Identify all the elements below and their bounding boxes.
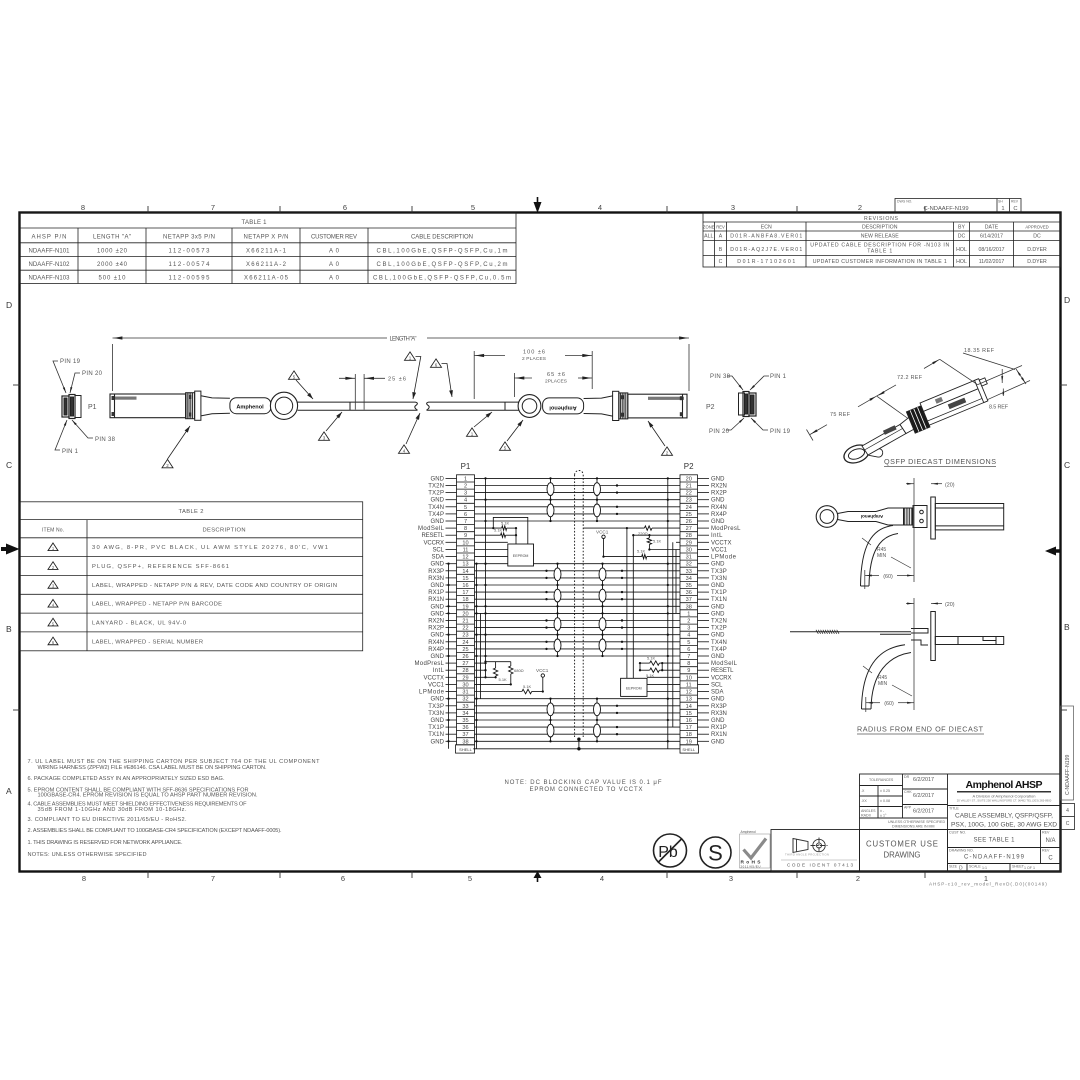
svg-text:D: D: [1064, 295, 1070, 305]
svg-text:GND: GND: [431, 583, 445, 589]
svg-text:DRAWING: DRAWING: [884, 851, 921, 860]
svg-text:2: 2: [464, 484, 467, 490]
svg-text:31: 31: [462, 690, 468, 696]
svg-text:9: 9: [464, 533, 467, 539]
svg-text:C: C: [1064, 460, 1070, 470]
svg-text:RESETL: RESETL: [711, 668, 734, 674]
svg-text:2011/65/EU: 2011/65/EU: [741, 865, 761, 869]
svg-text:C-NDAAFF-N199: C-NDAAFF-N199: [964, 855, 1025, 861]
svg-text:8: 8: [464, 526, 467, 532]
svg-text:RX3N: RX3N: [711, 711, 727, 717]
svg-text:RX4N: RX4N: [428, 640, 444, 646]
svg-text:680Ω: 680Ω: [514, 668, 524, 673]
svg-text:GND: GND: [431, 562, 445, 568]
svg-text:GND: GND: [711, 498, 725, 504]
svg-text:EPROM CONNECTED TO VCCTX: EPROM CONNECTED TO VCCTX: [530, 787, 643, 793]
svg-text:A: A: [719, 234, 723, 240]
svg-text:ModSelL: ModSelL: [711, 661, 738, 667]
svg-text:VCCRX: VCCRX: [711, 675, 732, 681]
svg-text:X66211A-1: X66211A-1: [246, 249, 287, 255]
svg-text:(60): (60): [883, 574, 893, 580]
svg-text:BY: BY: [958, 225, 965, 231]
svg-text:EEPROM: EEPROM: [626, 686, 642, 690]
svg-text:D.DYER: D.DYER: [1027, 247, 1047, 253]
svg-text:AHSP P/N: AHSP P/N: [32, 235, 67, 241]
svg-text:GND: GND: [711, 697, 725, 703]
svg-text:5: 5: [468, 874, 472, 883]
svg-text:TX1P: TX1P: [428, 725, 444, 731]
svg-text:26: 26: [462, 654, 468, 660]
svg-text:GND: GND: [431, 498, 445, 504]
svg-text:VCC1: VCC1: [428, 682, 445, 688]
svg-text:7: 7: [211, 874, 215, 883]
svg-text:TX2P: TX2P: [711, 626, 727, 632]
svg-text:ECN: ECN: [761, 225, 772, 231]
svg-text:TX1P: TX1P: [711, 590, 727, 596]
svg-text:6: 6: [687, 647, 690, 653]
svg-text:12: 12: [686, 690, 692, 696]
svg-text:APPROVED: APPROVED: [1025, 225, 1048, 230]
svg-text:CABLE ASSEMBLY, QSFP/QSFP,: CABLE ASSEMBLY, QSFP/QSFP,: [955, 813, 1053, 820]
svg-text:3: 3: [464, 491, 467, 497]
svg-text:C: C: [1048, 856, 1053, 862]
svg-text:4: 4: [1066, 808, 1069, 814]
svg-text:16: 16: [462, 583, 468, 589]
svg-text:SCL: SCL: [433, 548, 445, 554]
svg-text:LABEL, WRAPPED - NETAPP P/N &: LABEL, WRAPPED - NETAPP P/N & REV, DATE …: [92, 583, 337, 589]
svg-text:8.5 REF: 8.5 REF: [989, 405, 1009, 411]
svg-text:TX2P: TX2P: [428, 491, 444, 497]
svg-text:QSFP DIECAST DIMENSIONS: QSFP DIECAST DIMENSIONS: [884, 457, 996, 466]
svg-text:CABLE DESCRIPTION: CABLE DESCRIPTION: [411, 235, 473, 241]
svg-text:11: 11: [686, 682, 692, 688]
svg-text:DR: DR: [904, 775, 910, 779]
svg-text:DC: DC: [1033, 234, 1041, 240]
svg-text:.XX: .XX: [861, 799, 867, 803]
svg-text:NOTE: DC BLOCKING CAP VALUE IS: NOTE: DC BLOCKING CAP VALUE IS 0.1 μF: [505, 780, 662, 786]
svg-text:2. ASSEMBLIES SHALL BE COMPLIA: 2. ASSEMBLIES SHALL BE COMPLIANT TO 100G…: [28, 828, 282, 834]
svg-text:7: 7: [464, 519, 467, 525]
svg-text:LPMode: LPMode: [711, 555, 737, 561]
svg-text:LABEL, WRAPPED - NETAPP P/N BA: LABEL, WRAPPED - NETAPP P/N BARCODE: [92, 602, 222, 608]
svg-text:4: 4: [598, 203, 602, 212]
svg-text:GND: GND: [711, 611, 725, 617]
svg-text:PIN 19: PIN 19: [60, 359, 81, 365]
svg-text:RX1P: RX1P: [428, 590, 444, 596]
svg-text:TABLE 2: TABLE 2: [179, 509, 204, 515]
svg-text:TX1N: TX1N: [711, 597, 727, 603]
svg-text:RX4P: RX4P: [711, 512, 727, 518]
svg-text:32: 32: [686, 562, 692, 568]
svg-text:5.1K: 5.1K: [523, 684, 532, 689]
svg-text:5.1K: 5.1K: [647, 656, 656, 661]
svg-text:28: 28: [462, 668, 468, 674]
svg-text:D.DYER: D.DYER: [1027, 259, 1047, 265]
svg-text:TX2N: TX2N: [428, 484, 444, 490]
svg-text:ITEM No.: ITEM No.: [42, 528, 64, 534]
svg-text:1 OF 1: 1 OF 1: [1024, 866, 1035, 870]
svg-text:TX4N: TX4N: [711, 640, 727, 646]
svg-text:1. THIS DRAWING IS RESERVED FO: 1. THIS DRAWING IS RESERVED FOR NETWORK …: [28, 840, 183, 846]
svg-text:(60): (60): [884, 701, 894, 707]
svg-text:7: 7: [687, 654, 690, 660]
svg-text:DRAWING NO.: DRAWING NO.: [949, 849, 974, 853]
svg-text:UPDATED CUSTOMER INFORMATION I: UPDATED CUSTOMER INFORMATION IN TABLE 1: [813, 259, 947, 265]
svg-text:CUSTOMER REV: CUSTOMER REV: [311, 235, 357, 241]
svg-text:5.1K: 5.1K: [637, 549, 646, 554]
svg-text:CUST NO.: CUST NO.: [949, 831, 966, 835]
svg-text:TABLE 1: TABLE 1: [867, 249, 892, 255]
svg-text:SH: SH: [998, 200, 1003, 204]
svg-text:15: 15: [462, 576, 468, 582]
svg-text:PIN 20: PIN 20: [82, 371, 103, 377]
svg-text:GND: GND: [711, 654, 725, 660]
svg-text:REV: REV: [1042, 849, 1050, 853]
svg-text:26: 26: [686, 519, 692, 525]
svg-text:18.35 REF: 18.35 REF: [964, 348, 995, 354]
svg-text:THIRD ANGLE PROJECTION: THIRD ANGLE PROJECTION: [785, 853, 829, 857]
svg-text:27: 27: [686, 526, 692, 532]
svg-text:HOL: HOL: [956, 247, 967, 253]
svg-text:25: 25: [686, 512, 692, 518]
svg-text:20: 20: [686, 476, 692, 482]
svg-text:Pb: Pb: [658, 844, 678, 861]
svg-text:D01R-AQ2J7E.VER01: D01R-AQ2J7E.VER01: [730, 247, 802, 253]
svg-text:2: 2: [858, 203, 862, 212]
svg-text:GND: GND: [711, 583, 725, 589]
svg-text:± 1°: ± 1°: [880, 814, 887, 818]
svg-text:AHSP-c10_rev_model_RevD(.D0)(0: AHSP-c10_rev_model_RevD(.D0)(00149): [929, 882, 1048, 887]
svg-text:DC: DC: [958, 234, 966, 240]
svg-text:APP: APP: [904, 806, 912, 810]
svg-text:24: 24: [686, 505, 692, 511]
svg-text:112-00573: 112-00573: [169, 249, 211, 255]
svg-text:PIN 38: PIN 38: [95, 437, 116, 443]
svg-text:RADIUS FROM END OF DIECAST: RADIUS FROM END OF DIECAST: [857, 725, 984, 734]
svg-text:NETAPP 3x5 P/N: NETAPP 3x5 P/N: [163, 235, 215, 241]
svg-text:8: 8: [81, 203, 85, 212]
svg-text:34: 34: [686, 576, 692, 582]
svg-text:30: 30: [686, 548, 692, 554]
svg-text:GND: GND: [431, 718, 445, 724]
svg-text:RX1N: RX1N: [711, 732, 727, 738]
svg-text:3: 3: [731, 203, 735, 212]
svg-text:CBL,100GbE,QSFP-QSFP,Cu,0.5m: CBL,100GbE,QSFP-QSFP,Cu,0.5m: [373, 276, 511, 282]
svg-text:GND: GND: [431, 519, 445, 525]
svg-text:6: 6: [464, 512, 467, 518]
svg-text:RX1P: RX1P: [711, 725, 727, 731]
svg-text:25 ±6: 25 ±6: [388, 377, 406, 383]
svg-text:NOTES: UNLESS OTHERWISE SPECIF: NOTES: UNLESS OTHERWISE SPECIFIED: [28, 852, 147, 858]
svg-text:1: 1: [464, 476, 467, 482]
svg-text:17: 17: [686, 725, 692, 731]
svg-text:(20): (20): [945, 482, 955, 488]
svg-text:VCC1: VCC1: [536, 668, 549, 673]
svg-text:C: C: [1066, 821, 1070, 827]
svg-text:X66211A-05: X66211A-05: [244, 276, 289, 282]
svg-text:24: 24: [462, 640, 468, 646]
svg-text:A: A: [6, 786, 12, 796]
svg-text:VCC1: VCC1: [711, 548, 728, 554]
svg-text:35: 35: [686, 583, 692, 589]
svg-text:RESETL: RESETL: [422, 533, 445, 539]
svg-text:B: B: [6, 624, 12, 634]
svg-text:IntL: IntL: [711, 533, 723, 539]
svg-text:GND: GND: [431, 476, 445, 482]
svg-text:35dB FROM 1-10GHz AND 30dB FRO: 35dB FROM 1-10GHz AND 30dB FROM 10-18GHz…: [38, 807, 187, 813]
svg-text:SDA: SDA: [711, 690, 724, 696]
svg-text:NETAPP X P/N: NETAPP X P/N: [244, 235, 289, 241]
svg-text:112-00595: 112-00595: [169, 276, 211, 282]
svg-text:RX2N: RX2N: [428, 619, 444, 625]
svg-text:± 0.08: ± 0.08: [880, 799, 890, 803]
svg-text:14: 14: [462, 569, 468, 575]
svg-text:12: 12: [462, 555, 468, 561]
svg-text:P1: P1: [88, 404, 97, 411]
svg-text:TX3N: TX3N: [711, 576, 727, 582]
svg-text:SHEET: SHEET: [1012, 865, 1025, 869]
svg-text:RX4P: RX4P: [428, 647, 444, 653]
svg-text:ALL: ALL: [704, 234, 713, 240]
svg-text:NDAAFF-N103: NDAAFF-N103: [29, 276, 71, 282]
svg-text:WIRING HARNESS (ZPFW2) FILE #E: WIRING HARNESS (ZPFW2) FILE #E86146. CSA…: [38, 765, 267, 771]
svg-text:34: 34: [462, 711, 468, 717]
svg-text:B: B: [1064, 622, 1070, 632]
svg-text:10: 10: [686, 675, 692, 681]
svg-text:D: D: [959, 866, 963, 872]
svg-text:NEW RELEASE: NEW RELEASE: [861, 234, 900, 240]
svg-text:33: 33: [462, 704, 468, 710]
svg-text:6. PACKAGE COMPLETED ASSY IN A: 6. PACKAGE COMPLETED ASSY IN AN APPROPRI…: [28, 776, 225, 782]
svg-text:NDAAFF-N101: NDAAFF-N101: [29, 249, 71, 255]
svg-text:6/2/2017: 6/2/2017: [913, 777, 934, 783]
svg-text:P2: P2: [706, 404, 715, 411]
svg-text:TOLERANCES: TOLERANCES: [869, 778, 894, 782]
svg-text:CHK: CHK: [904, 790, 912, 794]
svg-text:PIN 1: PIN 1: [770, 374, 787, 380]
svg-text:112-00574: 112-00574: [169, 262, 211, 268]
svg-text:100 ±6: 100 ±6: [523, 350, 545, 356]
svg-text:SCL: SCL: [711, 682, 723, 688]
svg-text:GND: GND: [711, 519, 725, 525]
svg-text:13: 13: [462, 562, 468, 568]
svg-text:1:1: 1:1: [982, 866, 987, 870]
svg-text:LENGTH "A": LENGTH "A": [390, 337, 417, 343]
svg-text:LENGTH "A": LENGTH "A": [93, 235, 131, 241]
svg-text:2000 ±40: 2000 ±40: [97, 262, 128, 268]
svg-text:GND: GND: [431, 739, 445, 745]
svg-text:25: 25: [462, 647, 468, 653]
svg-text:DIMENSIONS ARE IN MM: DIMENSIONS ARE IN MM: [892, 825, 935, 829]
svg-text:C: C: [6, 460, 12, 470]
svg-text:PSX, 100G, 100 GbE, 30 AWG EXD: PSX, 100G, 100 GbE, 30 AWG EXD: [951, 822, 1057, 829]
svg-text:2: 2: [687, 619, 690, 625]
svg-text:REVISIONS: REVISIONS: [864, 216, 899, 222]
svg-text:2 PLACES: 2 PLACES: [522, 356, 546, 362]
svg-text:RX2P: RX2P: [711, 491, 727, 497]
svg-text:LANYARD - BLACK, UL 94V-0: LANYARD - BLACK, UL 94V-0: [92, 621, 186, 627]
svg-text:21: 21: [686, 484, 692, 490]
svg-text:C: C: [719, 259, 723, 265]
svg-text:TITLE: TITLE: [949, 807, 959, 811]
svg-text:D: D: [6, 300, 12, 310]
svg-text:37: 37: [686, 597, 692, 603]
svg-text:TX4P: TX4P: [428, 512, 444, 518]
svg-text:5.1K: 5.1K: [501, 521, 510, 526]
svg-text:3: 3: [687, 626, 690, 632]
svg-text:13: 13: [686, 697, 692, 703]
svg-text:4: 4: [600, 874, 604, 883]
svg-text:VCCTX: VCCTX: [711, 540, 732, 546]
svg-text:2: 2: [856, 874, 860, 883]
svg-text:6: 6: [343, 203, 347, 212]
svg-text:5.1K: 5.1K: [653, 539, 662, 544]
svg-text:X66211A-2: X66211A-2: [246, 262, 287, 268]
svg-text:7: 7: [211, 203, 215, 212]
svg-text:PIN 19: PIN 19: [770, 429, 791, 435]
svg-text:5: 5: [471, 203, 475, 212]
svg-text:6/2/2017: 6/2/2017: [913, 793, 934, 799]
svg-text:18: 18: [462, 597, 468, 603]
svg-text:PIN 38: PIN 38: [710, 374, 731, 380]
svg-text:REV: REV: [716, 225, 725, 230]
svg-text:11/02/2017: 11/02/2017: [979, 259, 1005, 265]
svg-text:DATE: DATE: [985, 225, 999, 231]
svg-text:LABEL, WRAPPED - SERIAL NUMBER: LABEL, WRAPPED - SERIAL NUMBER: [92, 639, 203, 645]
svg-text:CUSTOMER USE: CUSTOMER USE: [866, 840, 938, 849]
svg-text:38: 38: [462, 739, 468, 745]
svg-text:ModPresL: ModPresL: [415, 661, 445, 667]
svg-text:REV: REV: [1011, 200, 1019, 204]
svg-text:5: 5: [687, 640, 690, 646]
svg-text:DWG NO.: DWG NO.: [897, 200, 912, 204]
svg-text:GND: GND: [431, 697, 445, 703]
svg-text:9: 9: [687, 668, 690, 674]
svg-text:1: 1: [687, 611, 690, 617]
svg-text:HOL: HOL: [956, 259, 967, 265]
svg-text:Amphenol: Amphenol: [549, 404, 577, 410]
svg-text:TX4N: TX4N: [428, 505, 444, 511]
svg-text:5.1K: 5.1K: [646, 673, 655, 678]
svg-text:18: 18: [686, 732, 692, 738]
svg-text:33: 33: [686, 569, 692, 575]
svg-text:DESCRIPTION: DESCRIPTION: [203, 528, 246, 534]
svg-text:GND: GND: [711, 633, 725, 639]
svg-text:5.1K: 5.1K: [499, 677, 508, 682]
svg-text:3. COMPLIANT TO EU DIRECTIVE 2: 3. COMPLIANT TO EU DIRECTIVE 2011/65/EU …: [28, 817, 187, 823]
svg-text:ANGLES: ANGLES: [861, 809, 876, 813]
svg-text:31: 31: [686, 555, 692, 561]
svg-text:4: 4: [464, 498, 467, 504]
svg-text:19: 19: [686, 739, 692, 745]
svg-text:C: C: [1013, 206, 1017, 212]
svg-text:28: 28: [686, 533, 692, 539]
svg-text:VCCTX: VCCTX: [424, 675, 445, 681]
svg-text:DESCRIPTION: DESCRIPTION: [862, 225, 898, 231]
svg-text:220Ω: 220Ω: [638, 531, 648, 536]
svg-text:UNLESS OTHERWISE SPECIFIED: UNLESS OTHERWISE SPECIFIED: [888, 820, 945, 824]
svg-text:19: 19: [462, 604, 468, 610]
svg-text:30 AWG, 8-PR, PVC BLACK, UL AW: 30 AWG, 8-PR, PVC BLACK, UL AWM STYLE 20…: [92, 545, 328, 551]
svg-text:GND: GND: [431, 604, 445, 610]
svg-text:75 REF: 75 REF: [830, 412, 851, 418]
svg-text:SHELL: SHELL: [682, 747, 695, 752]
svg-text:6/14/2017: 6/14/2017: [980, 234, 1003, 240]
svg-text:GND: GND: [711, 739, 725, 745]
svg-text:29: 29: [462, 675, 468, 681]
svg-text:36: 36: [686, 590, 692, 596]
svg-text:S: S: [708, 841, 723, 866]
svg-text:GND: GND: [711, 562, 725, 568]
svg-text:Amphenol AHSP: Amphenol AHSP: [966, 779, 1043, 791]
svg-text:RX2P: RX2P: [428, 626, 444, 632]
svg-text:500 ±10: 500 ±10: [99, 276, 127, 282]
svg-text:RX3P: RX3P: [711, 704, 727, 710]
svg-text:GND: GND: [711, 604, 725, 610]
svg-text:08/16/2017: 08/16/2017: [979, 247, 1005, 253]
svg-text:21: 21: [462, 619, 468, 625]
svg-text:SEE TABLE 1: SEE TABLE 1: [974, 838, 1016, 844]
svg-text:5.1K: 5.1K: [494, 528, 503, 533]
svg-text:27: 27: [462, 661, 468, 667]
svg-text:6: 6: [341, 874, 345, 883]
svg-text:32: 32: [462, 697, 468, 703]
svg-text:RX4N: RX4N: [711, 505, 727, 511]
svg-text:2PLACES: 2PLACES: [545, 378, 567, 384]
svg-text:RX3N: RX3N: [428, 576, 444, 582]
svg-text:± 0.25: ± 0.25: [880, 789, 890, 793]
svg-text:29: 29: [686, 540, 692, 546]
svg-text:GND: GND: [711, 476, 725, 482]
svg-text:C-NDAAFF-N199: C-NDAAFF-N199: [923, 206, 968, 212]
svg-text:D01R-ANBFA8.VER01: D01R-ANBFA8.VER01: [730, 234, 802, 240]
svg-text:38: 38: [686, 604, 692, 610]
svg-text:NDAAFF-N102: NDAAFF-N102: [29, 262, 71, 268]
svg-text:MIN: MIN: [877, 553, 887, 559]
svg-text:30: 30: [462, 682, 468, 688]
svg-text:11: 11: [463, 548, 469, 554]
svg-text:PIN 1: PIN 1: [62, 449, 79, 455]
svg-text:RX3P: RX3P: [428, 569, 444, 575]
svg-text:GND: GND: [431, 611, 445, 617]
svg-text:IntL: IntL: [433, 668, 445, 674]
svg-text:Amphenol: Amphenol: [741, 830, 757, 834]
svg-text:37: 37: [462, 732, 468, 738]
svg-text:1: 1: [1001, 206, 1004, 212]
svg-text:23: 23: [462, 633, 468, 639]
svg-text:10: 10: [462, 540, 468, 546]
svg-text:5: 5: [464, 505, 467, 511]
svg-text:20: 20: [462, 611, 468, 617]
svg-text:4: 4: [687, 633, 690, 639]
svg-text:C-NDAAFF-N199: C-NDAAFF-N199: [1065, 755, 1071, 795]
svg-text:20 VALLEY ST., SUITE 250 WALL: 20 VALLEY ST., SUITE 250 WALLINGFORD CT.…: [957, 799, 1052, 803]
svg-text:P2: P2: [684, 462, 694, 471]
svg-text:65 ±6: 65 ±6: [547, 372, 565, 378]
svg-text:Amphenol: Amphenol: [861, 514, 883, 519]
svg-text:SIZE: SIZE: [949, 865, 958, 869]
svg-text:P1: P1: [461, 462, 471, 471]
svg-text:ModPresL: ModPresL: [711, 526, 741, 532]
svg-text:RADII: RADII: [861, 814, 871, 818]
svg-text:GND: GND: [431, 654, 445, 660]
svg-text:17: 17: [462, 590, 468, 596]
svg-text:3: 3: [729, 874, 733, 883]
svg-text:SHELL: SHELL: [459, 747, 472, 752]
svg-text:TX3P: TX3P: [711, 569, 727, 575]
svg-text:LPMode: LPMode: [419, 690, 445, 696]
svg-text:Amphenol: Amphenol: [236, 405, 264, 411]
